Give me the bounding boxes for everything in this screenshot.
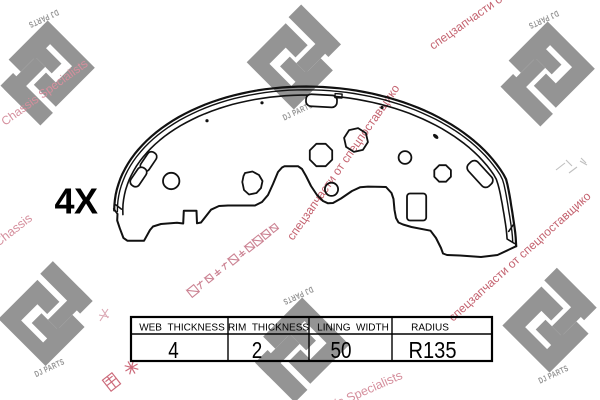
svg-text:LINING WIDTH: LINING WIDTH: [317, 323, 389, 334]
svg-text:4: 4: [168, 337, 179, 363]
svg-text:Chassis: Chassis: [0, 211, 35, 249]
svg-text:50: 50: [331, 337, 352, 363]
svg-text:2: 2: [252, 337, 263, 363]
svg-text:4X: 4X: [55, 181, 99, 222]
svg-text:R135: R135: [409, 337, 457, 363]
svg-text:RADIUS: RADIUS: [411, 323, 449, 334]
svg-text:RIM THICKNESS: RIM THICKNESS: [228, 323, 309, 334]
svg-text:WEB THICKNESS: WEB THICKNESS: [139, 323, 225, 334]
